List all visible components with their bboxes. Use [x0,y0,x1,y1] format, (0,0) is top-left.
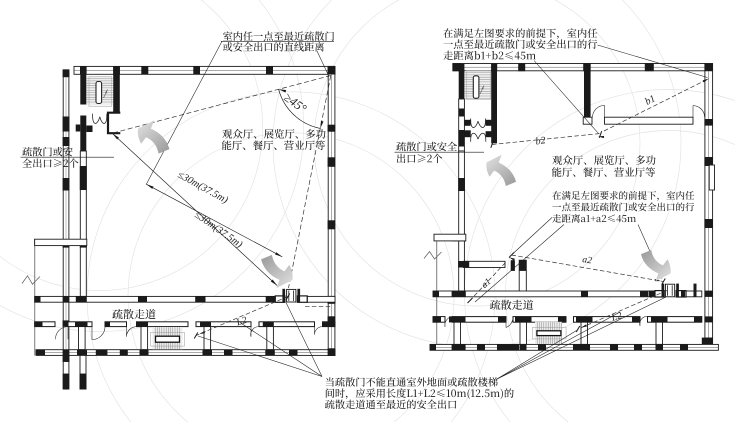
svg-text:b2: b2 [535,135,546,147]
svg-text:a2: a2 [582,255,593,266]
